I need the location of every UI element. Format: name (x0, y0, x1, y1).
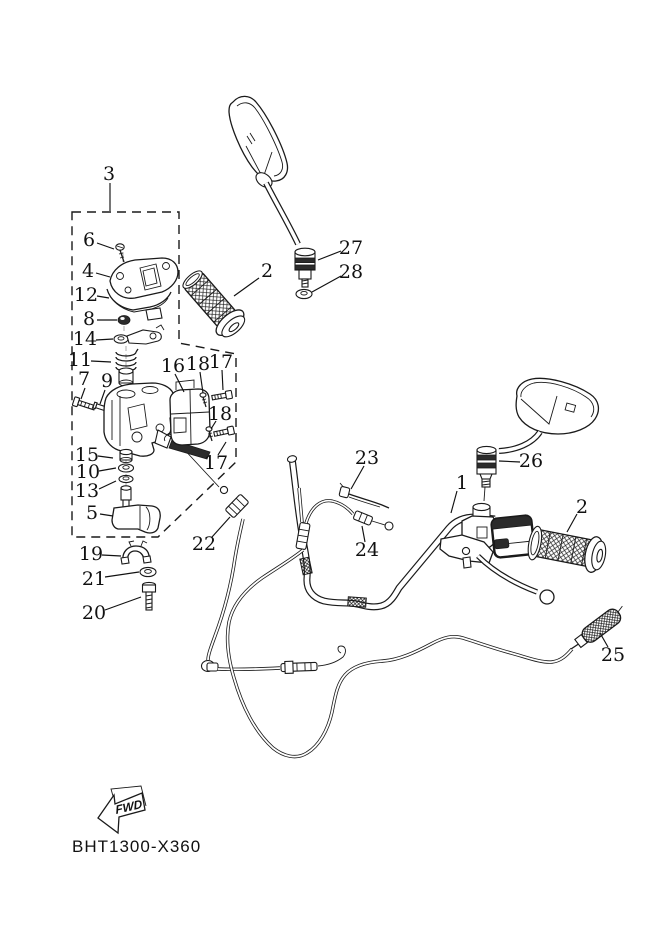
callout-19: 19 (79, 543, 103, 565)
footer-part-code: BHT1300-X360 (72, 837, 201, 856)
callout-21: 21 (82, 568, 106, 590)
callout-4: 4 (82, 260, 94, 282)
washer-10 (119, 464, 134, 472)
callout-25: 25 (601, 644, 625, 666)
callout-5: 5 (86, 502, 98, 524)
callout-28: 28 (339, 261, 363, 283)
callout-6: 6 (83, 229, 95, 251)
callout-7: 7 (78, 368, 90, 390)
callout-9: 9 (101, 370, 113, 392)
nut-8 (118, 316, 130, 325)
callout-8: 8 (83, 308, 95, 330)
callout-14: 14 (73, 328, 97, 350)
callout-18: 18 (208, 403, 232, 425)
callout-27: 27 (339, 237, 363, 259)
callout-17: 17 (204, 452, 228, 474)
callout-3: 3 (103, 163, 115, 185)
knurl-band-2 (348, 597, 367, 607)
lever-ball-end (540, 590, 554, 604)
callout-23: 23 (355, 447, 379, 469)
callout-22: 22 (192, 533, 216, 555)
callout-20: 20 (82, 602, 106, 624)
callout-16: 16 (161, 355, 185, 377)
callout-1: 1 (456, 472, 468, 494)
callout-2: 2 (576, 496, 588, 518)
callout-12: 12 (74, 284, 98, 306)
callout-2: 2 (261, 260, 273, 282)
parts-diagram-page: FWD BHT1300-X360 12234567891011121314151… (0, 0, 661, 936)
callout-17: 17 (209, 351, 233, 373)
washer-13 (119, 475, 133, 482)
callout-18: 18 (186, 353, 210, 375)
callout-11: 11 (68, 349, 92, 371)
callout-15: 15 (75, 444, 99, 466)
lever-5 (112, 505, 160, 533)
cable-end-ball (220, 486, 227, 493)
callout-26: 26 (519, 450, 543, 472)
washer-28 (296, 289, 312, 298)
bushing-9-stack (119, 368, 133, 386)
callout-24: 24 (355, 539, 379, 561)
parts-diagram-svg: FWD BHT1300-X360 12234567891011121314151… (0, 0, 661, 936)
callout-13: 13 (75, 480, 99, 502)
washer-21 (140, 567, 156, 576)
